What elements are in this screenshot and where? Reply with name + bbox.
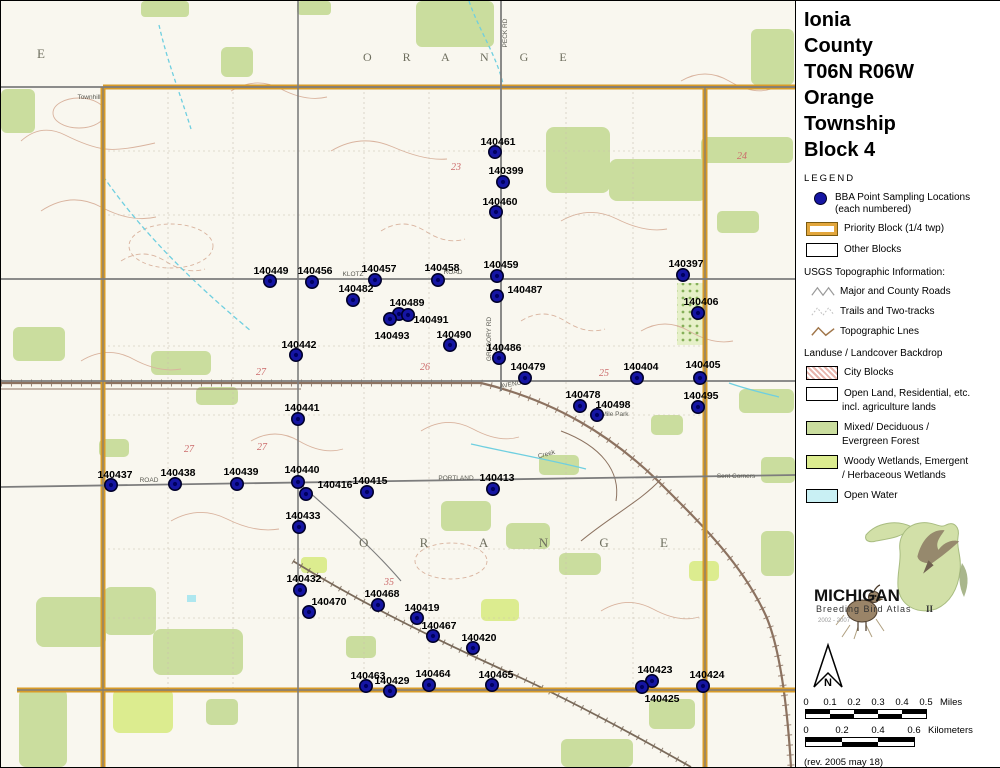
landuse-label: Mixed/ Deciduous /: [844, 421, 929, 434]
bba-point-core: [490, 683, 494, 687]
bba-point-label: 140487: [507, 284, 542, 296]
bba-point-core: [696, 311, 700, 315]
scale-tick: 0.1: [823, 697, 836, 708]
bba-point-core: [304, 492, 308, 496]
bba-point-label: 140432: [286, 573, 321, 585]
legend-label: Priority Block (1/4 twp): [844, 222, 944, 235]
bba-point-core: [268, 279, 272, 283]
bba-point-label: 140419: [404, 602, 439, 614]
bba-point-label: 140437: [97, 469, 132, 481]
km-scale-bar: [805, 737, 915, 747]
legend-label: (each numbered): [835, 204, 911, 215]
title-line: Block 4: [804, 137, 1000, 163]
bba-point-core: [495, 294, 499, 298]
other-blocks-swatch: [806, 243, 838, 257]
legend-item-bba-points: BBA Point Sampling Locations (each numbe…: [804, 191, 1000, 215]
bba-point-label: 140449: [253, 265, 288, 277]
road-label: GREGORY RD: [486, 317, 493, 361]
bba-point-core: [681, 273, 685, 277]
bba-point-label: 140438: [160, 467, 195, 479]
bba-point-core: [595, 413, 599, 417]
bba-point-label: 140415: [352, 475, 387, 487]
bba-point-core: [494, 210, 498, 214]
bba-point-label: 140458: [424, 262, 459, 274]
section-number: 35: [383, 577, 394, 588]
bba-point-core: [296, 480, 300, 484]
landuse-label: City Blocks: [844, 366, 893, 379]
bba-point-label: 140405: [685, 359, 720, 371]
bba-point-label: 140423: [637, 664, 672, 676]
usgs-label: Topographic Lnes: [840, 325, 919, 338]
bba-point-label: 140490: [436, 329, 471, 341]
logo-subtitle: Breeding Bird Atlas: [816, 604, 912, 614]
legend-item-other-blocks: Other Blocks: [804, 243, 1000, 257]
landuse-label-cont: incl. agriculture lands: [842, 401, 1000, 414]
bba-point-core: [415, 616, 419, 620]
bba-point-core: [296, 417, 300, 421]
township-label: O R A N G E: [359, 535, 692, 550]
topo-map-svg: O R A N G EO R A N G EE 2324272625272735…: [1, 1, 795, 767]
topo-line-icon: [810, 325, 836, 338]
bba-point-label: 140416: [317, 479, 352, 491]
usgs-heading: USGS Topographic Information:: [804, 267, 1000, 278]
title-line: Ionia: [804, 7, 1000, 33]
bba-point-label: 140479: [510, 361, 545, 373]
landuse-item-open: Open Land, Residential, etc.: [804, 387, 1000, 401]
wetland-swatch: [806, 455, 838, 469]
bba-point-label: 140461: [480, 136, 515, 148]
scale-tick: 0.2: [835, 725, 848, 736]
bba-point-core: [436, 278, 440, 282]
bba-point-label: 140498: [595, 399, 630, 411]
section-number: 27: [257, 442, 268, 453]
bba-point-label: 140442: [281, 339, 316, 351]
bba-point-label: 140441: [284, 402, 319, 414]
north-label: N: [824, 677, 832, 689]
bba-point-label: 140404: [623, 361, 658, 373]
usgs-label: Trails and Two-tracks: [840, 305, 934, 318]
legend-heading: LEGEND: [804, 173, 1000, 184]
bba-point-core: [696, 405, 700, 409]
landuse-label: Open Land, Residential, etc.: [844, 387, 970, 400]
bba-point-label: 140425: [644, 693, 679, 705]
bba-point-core: [310, 280, 314, 284]
road-label: Townhill: [77, 94, 101, 101]
logo-name: MICHIGAN: [814, 586, 900, 605]
bba-point-core: [109, 483, 113, 487]
bba-point-label: 140440: [284, 464, 319, 476]
scale-tick: 0.4: [871, 725, 884, 736]
title-line: T06N R06W: [804, 59, 1000, 85]
scale-miles: 00.10.20.30.40.5Miles: [804, 697, 1000, 723]
usgs-item-trails: Trails and Two-tracks: [804, 305, 1000, 318]
forest-swatch: [806, 421, 838, 435]
bba-point-core: [523, 376, 527, 380]
bba-point-label: 140424: [689, 669, 724, 681]
bba-point-core: [501, 180, 505, 184]
section-number: 27: [256, 367, 267, 378]
bba-point-legend-icon: [814, 192, 827, 205]
map-sheet: { "title": {"lines": ["Ionia","County","…: [0, 0, 1000, 768]
bba-point-core: [635, 376, 639, 380]
bba-point-label: 140493: [374, 330, 409, 342]
bba-point-label: 140460: [482, 196, 517, 208]
road-label: ROAD: [140, 477, 159, 484]
landuse-item-water: Open Water: [804, 489, 1000, 503]
scale-tick: 0.3: [871, 697, 884, 708]
road-label: KLOTZ: [343, 271, 364, 278]
bba-point-core: [406, 313, 410, 317]
section-number: 24: [737, 151, 747, 162]
bba-point-core: [493, 150, 497, 154]
bba-point-core: [297, 525, 301, 529]
legend-label: Other Blocks: [844, 243, 901, 256]
landuse-label: Open Water: [844, 489, 898, 502]
logo-numeral: II: [926, 604, 934, 614]
bba-point-core: [497, 356, 501, 360]
road-label: Mile Park: [601, 411, 629, 418]
scale-tick: 0: [803, 725, 808, 736]
north-arrow: N: [804, 645, 1000, 695]
bba-point-core: [373, 278, 377, 282]
bba-point-label: 140406: [683, 296, 718, 308]
road-label: PECK RD: [502, 18, 509, 47]
bba-point-core: [173, 482, 177, 486]
bba-point-core: [351, 298, 355, 302]
bba-point-core: [365, 490, 369, 494]
road-line-icon: [810, 285, 836, 298]
open-water-swatch: [806, 489, 838, 503]
landuse-item-city: City Blocks: [804, 366, 1000, 380]
bba-point-core: [701, 684, 705, 688]
bba-point-label: 140489: [389, 297, 424, 309]
bba-point-core: [388, 689, 392, 693]
bba-point-label: 140467: [421, 620, 456, 632]
bba-point-label: 140491: [413, 314, 448, 326]
township-label: E: [37, 46, 45, 61]
section-number: 25: [599, 368, 609, 379]
bba-point-core: [388, 317, 392, 321]
bba-point-label: 140464: [415, 668, 450, 680]
pond: [187, 595, 196, 602]
feather-illustration: [959, 563, 967, 597]
bba-point-core: [427, 683, 431, 687]
bba-point-label: 140397: [668, 258, 703, 270]
section-number: 27: [184, 444, 195, 455]
miles-scale-bar: [805, 709, 927, 719]
bba-point-label: 140470: [311, 596, 346, 608]
bba-point-core: [491, 487, 495, 491]
bba-point-label: 140433: [285, 510, 320, 522]
landuse-label-cont: Evergreen Forest: [842, 435, 1000, 448]
section-number: 26: [420, 362, 430, 373]
landuse-label: Woody Wetlands, Emergent: [844, 455, 968, 468]
map-canvas[interactable]: O R A N G EO R A N G EE 2324272625272735…: [1, 1, 796, 767]
title-line: Orange: [804, 85, 1000, 111]
bba-point-label: 140482: [338, 283, 373, 295]
landuse-item-forest: Mixed/ Deciduous /: [804, 421, 1000, 435]
bba-point-core: [376, 603, 380, 607]
scale-unit: Miles: [940, 697, 962, 708]
bba-point-core: [294, 353, 298, 357]
bba-point-core: [698, 376, 702, 380]
bba-point-core: [298, 588, 302, 592]
map-sheet-sidebar: Ionia County T06N R06W Orange Township B…: [796, 1, 1000, 767]
trail-line-icon: [810, 305, 836, 318]
landuse-item-wetland: Woody Wetlands, Emergent: [804, 455, 1000, 469]
bba-point-core: [495, 274, 499, 278]
revision-note: (rev. 2005 may 18): [804, 757, 1000, 768]
bba-point-label: 140429: [374, 675, 409, 687]
title-line: County: [804, 33, 1000, 59]
bba-point-label: 140459: [483, 259, 518, 271]
bba-point-core: [307, 610, 311, 614]
bba-point-core: [431, 634, 435, 638]
usgs-item-roads: Major and County Roads: [804, 285, 1000, 298]
usgs-label: Major and County Roads: [840, 285, 951, 298]
title-line: Township: [804, 111, 1000, 137]
bba-point-label: 140465: [478, 669, 513, 681]
usgs-item-topo: Topographic Lnes: [804, 325, 1000, 338]
bba-point-label: 140486: [486, 342, 521, 354]
scale-tick: 0: [803, 697, 808, 708]
priority-block-swatch: [806, 222, 838, 236]
legend-item-priority-block: Priority Block (1/4 twp): [804, 222, 1000, 236]
scale-tick: 0.6: [907, 725, 920, 736]
bba-point-core: [448, 343, 452, 347]
map-title: Ionia County T06N R06W Orange Township B…: [804, 7, 1000, 163]
bba-point-label: 140456: [297, 265, 332, 277]
section-number: 23: [451, 162, 461, 173]
bba-point-label: 140420: [461, 632, 496, 644]
township-label: O R A N G E: [363, 50, 581, 64]
bba-point-core: [364, 684, 368, 688]
miles-tick-labels: 00.10.20.30.40.5Miles: [804, 697, 1000, 709]
bba-point-label: 140495: [683, 390, 718, 402]
scale-tick: 0.4: [895, 697, 908, 708]
bba-point-core: [640, 685, 644, 689]
bba-point-label: 140468: [364, 588, 399, 600]
bba-point-label: 140439: [223, 466, 258, 478]
scale-tick: 0.5: [919, 697, 932, 708]
scale-unit: Kilometers: [928, 725, 973, 736]
road-label: PORTLAND: [438, 475, 474, 482]
bba-point-core: [650, 679, 654, 683]
road-label: Sent Corners: [717, 473, 756, 480]
landuse-heading: Landuse / Landcover Backdrop: [804, 348, 1000, 359]
landuse-label-cont: / Herbaceous Wetlands: [842, 469, 1000, 482]
michigan-bba-logo: MICHIGAN Breeding Bird Atlas 2002 - 2007…: [804, 511, 1000, 643]
legend-label: BBA Point Sampling Locations: [835, 192, 970, 203]
bba-point-core: [397, 312, 401, 316]
km-tick-labels: 00.20.40.6Kilometers: [804, 725, 1000, 737]
open-land-swatch: [806, 387, 838, 401]
bba-point-core: [578, 404, 582, 408]
bba-point-label: 140413: [479, 472, 514, 484]
bba-point-label: 140399: [488, 165, 523, 177]
bba-point-core: [471, 646, 475, 650]
bba-point-core: [235, 482, 239, 486]
scale-kilometers: 00.20.40.6Kilometers: [804, 725, 1000, 751]
city-blocks-swatch: [806, 366, 838, 380]
logo-years: 2002 - 2007: [818, 618, 851, 624]
bba-point-label: 140457: [361, 263, 396, 275]
scale-tick: 0.2: [847, 697, 860, 708]
